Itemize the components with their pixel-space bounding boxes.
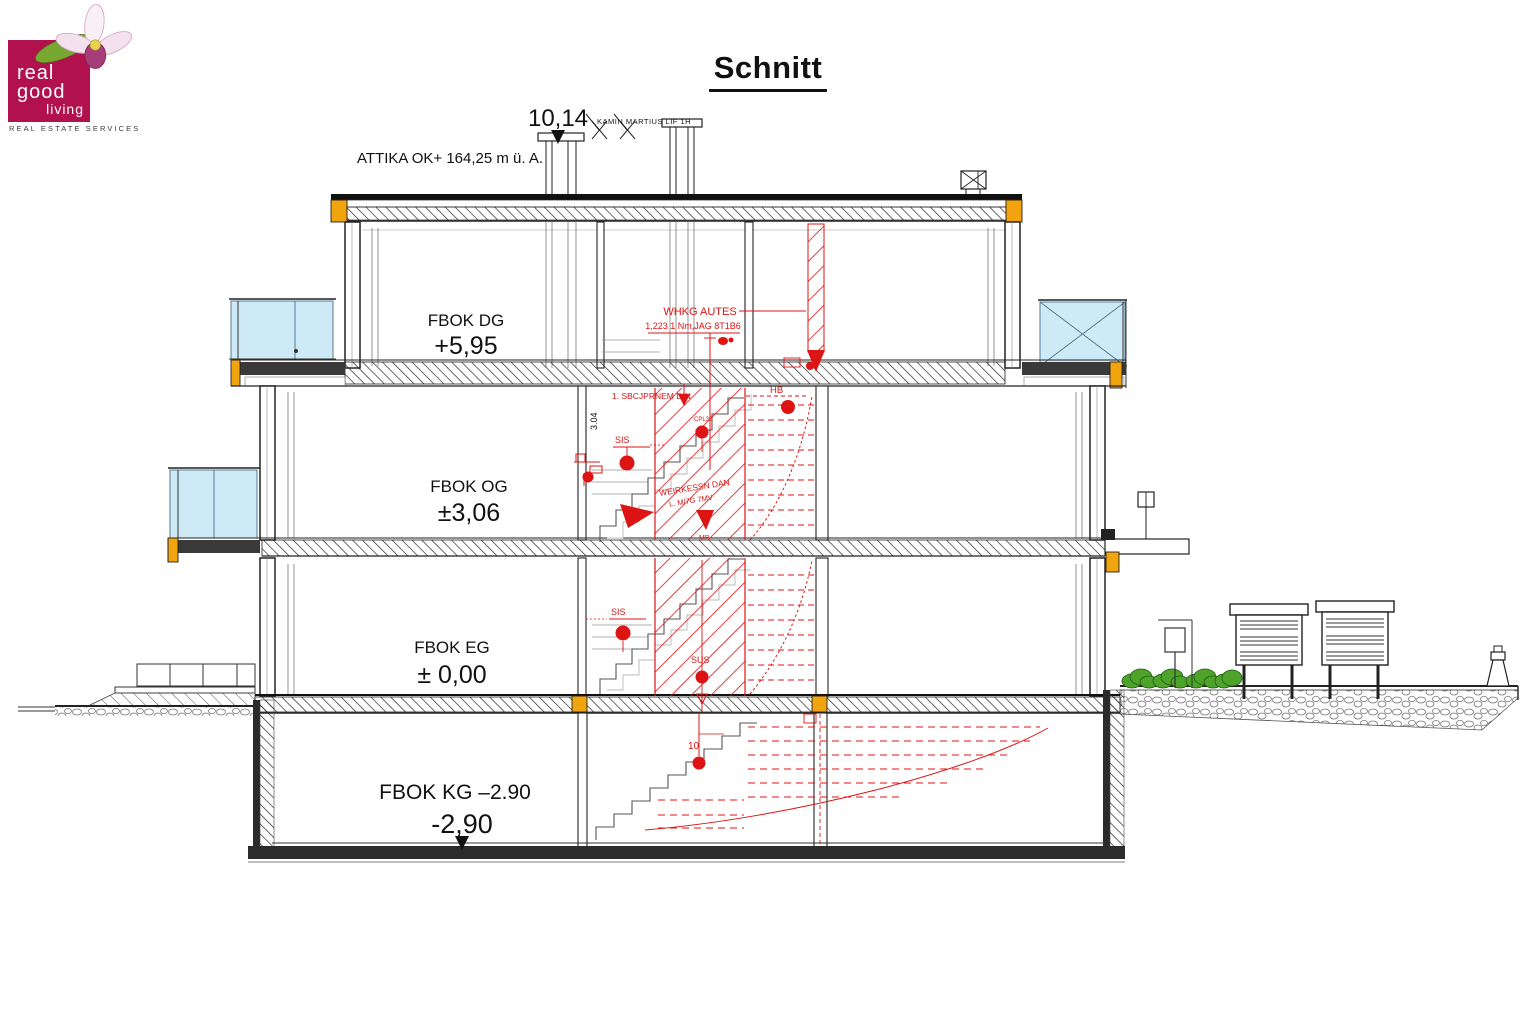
page: real good living REAL ESTATE SERVICES Sc…	[0, 0, 1536, 1024]
roof-vent-box	[961, 171, 986, 194]
glass-railing	[231, 301, 333, 359]
level-value-og: ±3,06	[438, 499, 500, 527]
chimney-1	[538, 133, 584, 194]
insulation-block	[572, 696, 587, 712]
level-label-eg: FBOK EG	[414, 638, 490, 657]
balcony-dg-right	[1038, 300, 1127, 366]
louver-unit-1	[1230, 604, 1308, 699]
level-label-og: FBOK OG	[430, 477, 507, 496]
slab-og	[168, 538, 1119, 572]
insulation-block	[1006, 200, 1022, 222]
level-label-kg: FBOK KG –2.90	[379, 781, 531, 804]
red-note-kg-num: 10	[688, 741, 700, 752]
level-kg	[248, 690, 1125, 862]
insulation-block	[812, 696, 827, 712]
level-value-kg: -2,90	[431, 809, 493, 839]
balcony-og-left	[168, 468, 260, 538]
vent-bollard	[1487, 646, 1509, 686]
level-value-eg: ± 0,00	[417, 661, 486, 689]
side-dimension: 3.04	[589, 412, 599, 430]
slab-eg	[255, 695, 1120, 713]
glass-railing	[170, 470, 257, 538]
red-note-sus: SUS	[691, 655, 710, 665]
right-terrain	[1120, 601, 1518, 730]
balcony-dg-left	[229, 299, 336, 359]
red-overlay: WHKG AUTES 1,223 1 Nm,JAG 8T1B6 1. SBCJP…	[574, 224, 1048, 845]
insulation-block	[1110, 362, 1122, 388]
red-wedge	[620, 504, 654, 528]
insulation-block	[1106, 552, 1119, 572]
red-note-mb: MB	[699, 535, 710, 542]
canopy-og-right	[1101, 492, 1189, 554]
red-note-whkg: WHKG AUTES	[663, 306, 736, 318]
bushes	[1122, 669, 1242, 688]
insulation-block	[231, 360, 240, 386]
roof	[331, 194, 1022, 230]
red-note-hb: HB	[770, 385, 783, 396]
level-value-dg: +5,95	[434, 332, 497, 360]
red-note-sis-og: SIS	[615, 435, 630, 445]
attika-label: ATTIKA OK+ 164,25 m ü. A.	[357, 150, 543, 167]
louver-unit-2	[1316, 601, 1394, 699]
red-shaft	[808, 224, 824, 352]
red-note-whkg2: 1,223 1 Nm,JAG 8T1B6	[645, 321, 741, 331]
section-drawing: WHKG AUTES 1,223 1 Nm,JAG 8T1B6 1. SBCJP…	[0, 0, 1536, 1024]
left-terrain	[18, 664, 255, 716]
insulation-block	[168, 538, 178, 562]
chimney-2	[662, 119, 702, 194]
insulation-block	[331, 200, 347, 222]
red-note-sis-eg: SIS	[611, 607, 626, 617]
level-label-dg: FBOK DG	[428, 311, 505, 330]
top-small-label: KAMIN MARTIUS LIF 1H	[597, 117, 691, 126]
top-dimension: 10,14	[528, 105, 588, 132]
